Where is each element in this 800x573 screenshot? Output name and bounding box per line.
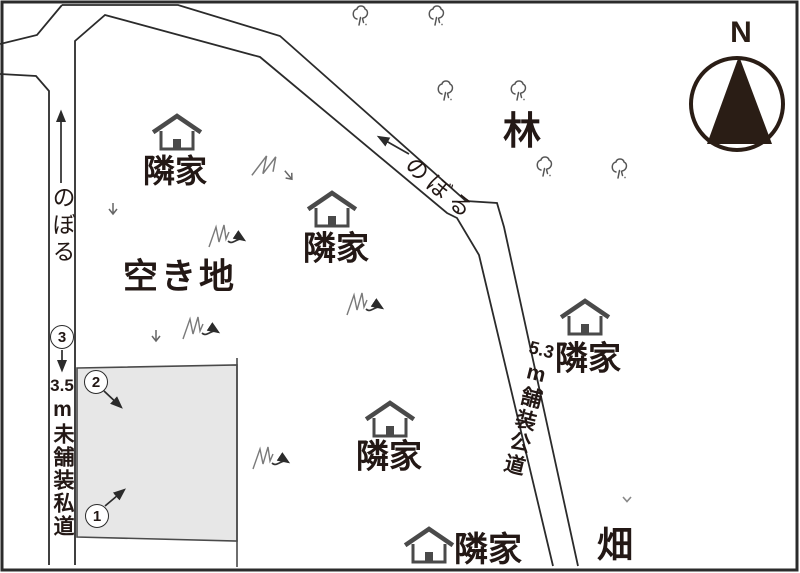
- neighbor-house-label: 隣家: [454, 533, 522, 567]
- side-road-upper-edge: [0, 5, 62, 44]
- slope-label-private-road: のぼる: [45, 186, 79, 267]
- grass-tuft-icon: [252, 152, 278, 182]
- field-label: 畑: [597, 527, 633, 563]
- tree-icon: [511, 81, 525, 100]
- neighbor-house-label: 隣家: [303, 232, 369, 265]
- neighbor-house-label: 隣家: [356, 440, 422, 473]
- site-plan-map: N 空き地 林 畑 隣家 隣家 隣家 隣家 隣家 のぼる のぼる 3 2 1 3…: [0, 0, 800, 573]
- neighbor-house-label: 隣家: [555, 342, 621, 375]
- grass-tuft-icon: [183, 317, 218, 339]
- neighbor-house-label: 隣家: [143, 155, 207, 187]
- house-icon: [155, 116, 199, 149]
- small-chevron-icon: [623, 497, 631, 502]
- grass-tuft-icon: [253, 447, 288, 469]
- grass-tuft-icon: [209, 225, 244, 247]
- property-marker-1: 1: [85, 504, 109, 528]
- public-road-width: 5.3: [527, 337, 556, 363]
- tree-icon: [612, 159, 626, 178]
- vacant-lot-label: 空き地: [123, 260, 237, 295]
- road-marker-3: 3: [50, 325, 74, 349]
- private-road-width: 3.5: [50, 376, 74, 396]
- private-road-left-edge: [0, 74, 49, 565]
- small-down-arrow-icon: [152, 330, 160, 341]
- tree-icon: [353, 6, 367, 25]
- house-icon: [368, 403, 412, 436]
- small-down-arrow-icon: [109, 203, 117, 214]
- house-icon: [407, 529, 451, 562]
- house-icon: [563, 301, 607, 334]
- compass-north-label: N: [730, 16, 752, 50]
- property-marker-2: 2: [84, 370, 108, 394]
- small-down-right-arrow-icon: [282, 168, 295, 182]
- tree-icon: [438, 81, 452, 100]
- site-plan-geometry: [0, 0, 800, 573]
- house-icon: [310, 193, 354, 226]
- tree-icon: [429, 6, 443, 25]
- private-road-name-text: m未舗装私道: [47, 398, 77, 538]
- grass-tuft-icon: [347, 293, 382, 315]
- private-road-name: 3.5 m未舗装私道: [47, 376, 77, 538]
- forest-label: 林: [503, 113, 541, 151]
- compass-north-icon: [691, 56, 783, 150]
- tree-icon: [537, 157, 551, 176]
